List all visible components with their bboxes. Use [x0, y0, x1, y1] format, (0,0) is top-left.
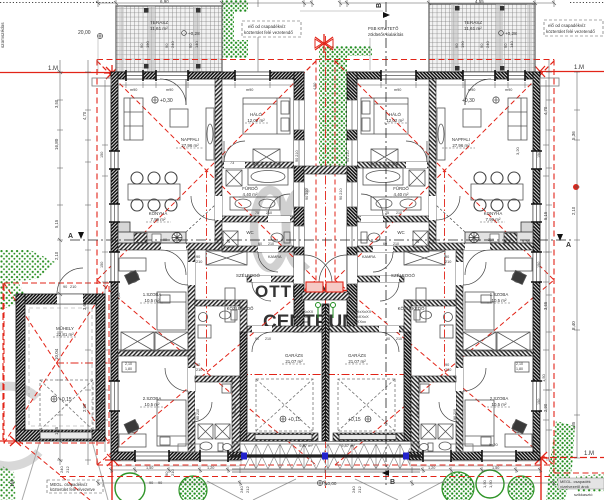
- svg-text:SZÉLFOGÓ: SZÉLFOGÓ: [391, 273, 415, 278]
- svg-text:közterület felé vezetendő: közterület felé vezetendő: [244, 30, 293, 35]
- svg-text:27,96 m²: 27,96 m²: [181, 143, 199, 148]
- svg-text:NAPPALI: NAPPALI: [181, 137, 199, 142]
- svg-text:16,80: 16,80: [54, 138, 59, 150]
- svg-text:10,5 m²: 10,5 m²: [492, 402, 507, 407]
- svg-text:+0,28: +0,28: [188, 31, 200, 36]
- svg-text:NAPPALI: NAPPALI: [452, 137, 470, 142]
- svg-text:90 210: 90 210: [339, 188, 343, 200]
- svg-text:B: B: [390, 479, 395, 486]
- svg-text:212: 212: [357, 486, 362, 493]
- svg-text:90 210: 90 210: [196, 409, 200, 420]
- svg-text:1,20: 1,20: [428, 466, 435, 470]
- svg-text:m90: m90: [246, 88, 253, 92]
- svg-text:GARÁZS: GARÁZS: [348, 353, 366, 358]
- svg-text:210: 210: [226, 245, 232, 249]
- svg-text:210: 210: [196, 260, 202, 264]
- svg-text:75 210: 75 210: [215, 169, 219, 180]
- svg-text:5,20: 5,20: [117, 293, 121, 300]
- svg-text:m90: m90: [130, 88, 137, 92]
- svg-text:szomszédos: szomszédos: [0, 22, 5, 48]
- svg-text:1,50: 1,50: [482, 479, 487, 488]
- svg-text:PSB KRV TETŐ: PSB KRV TETŐ: [368, 26, 399, 31]
- svg-text:2,10: 2,10: [571, 206, 576, 215]
- svg-text:60 210: 60 210: [416, 404, 420, 415]
- svg-text:1,50: 1,50: [541, 373, 546, 382]
- svg-text:5,36: 5,36: [522, 239, 531, 244]
- svg-text:212: 212: [65, 466, 70, 473]
- svg-text:73: 73: [368, 161, 372, 165]
- svg-text:90: 90: [386, 337, 390, 341]
- svg-text:90 210: 90 210: [453, 409, 457, 420]
- svg-text:elő od csapadékvíz: elő od csapadékvíz: [548, 23, 586, 28]
- svg-text:KAMRA: KAMRA: [362, 255, 376, 259]
- svg-text:4,40 m²: 4,40 m²: [394, 192, 409, 197]
- svg-text:90: 90: [479, 43, 484, 48]
- svg-text:150: 150: [537, 262, 541, 268]
- svg-text:90: 90: [255, 337, 259, 341]
- svg-text:75: 75: [385, 211, 389, 215]
- svg-text:+0,28: +0,28: [505, 31, 517, 36]
- svg-text:+0,15: +0,15: [288, 417, 301, 423]
- svg-text:1,80: 1,80: [516, 367, 523, 371]
- svg-text:WC: WC: [397, 230, 404, 235]
- svg-text:1,80: 1,80: [125, 367, 132, 371]
- svg-text:TERASZ: TERASZ: [464, 20, 482, 25]
- svg-text:TERASZ: TERASZ: [150, 20, 168, 25]
- svg-text:210: 210: [488, 238, 494, 242]
- svg-text:1,50: 1,50: [488, 479, 493, 488]
- svg-text:3,50: 3,50: [54, 99, 59, 108]
- svg-text:1.M: 1.M: [48, 66, 58, 72]
- svg-text:10,5 m²: 10,5 m²: [145, 402, 160, 407]
- svg-text:210: 210: [70, 285, 76, 289]
- svg-text:10,5 m²: 10,5 m²: [492, 298, 507, 303]
- svg-text:1,20: 1,20: [207, 466, 214, 470]
- svg-text:7,99 m²: 7,99 m²: [486, 217, 501, 222]
- svg-text:KAMRA: KAMRA: [268, 255, 282, 259]
- svg-text:1,50: 1,50: [492, 466, 499, 470]
- svg-text:közterület felé vezetendő: közterület felé vezetendő: [546, 29, 595, 34]
- svg-text:75: 75: [415, 240, 419, 244]
- svg-text:12,02 m²: 12,02 m²: [247, 118, 265, 123]
- svg-text:90: 90: [164, 471, 169, 476]
- svg-text:20,00: 20,00: [78, 30, 91, 36]
- svg-text:1.SZOBA: 1.SZOBA: [143, 292, 162, 297]
- svg-text:KONYHA: KONYHA: [484, 211, 503, 216]
- svg-text:+0,15: +0,15: [348, 417, 361, 423]
- svg-text:150: 150: [100, 262, 104, 268]
- svg-text:GARÁZS: GARÁZS: [285, 353, 303, 358]
- svg-text:3,65: 3,65: [82, 301, 87, 310]
- svg-text:KÖZLEKEDŐ: KÖZLEKEDŐ: [398, 306, 425, 311]
- svg-text:90: 90: [196, 255, 200, 259]
- svg-text:150: 150: [100, 152, 104, 158]
- svg-text:lm20: lm20: [489, 442, 498, 447]
- svg-text:2,90: 2,90: [543, 403, 548, 412]
- svg-text:7,99 m²: 7,99 m²: [151, 217, 166, 222]
- svg-text:+0,30: +0,30: [462, 98, 475, 104]
- svg-text:2,10: 2,10: [516, 362, 523, 366]
- svg-text:3,20: 3,20: [515, 146, 520, 155]
- svg-text:210: 210: [393, 242, 399, 246]
- svg-text:m90: m90: [468, 88, 475, 92]
- svg-text:60: 60: [383, 242, 387, 246]
- svg-text:21,07 m²: 21,07 m²: [348, 359, 366, 364]
- svg-text:10,04: 10,04: [54, 348, 59, 360]
- svg-text:90 210: 90 210: [295, 150, 299, 162]
- svg-text:210: 210: [445, 260, 451, 264]
- svg-text:B: B: [376, 3, 383, 8]
- svg-text:5,36: 5,36: [571, 131, 576, 140]
- svg-text:1,85: 1,85: [571, 421, 576, 430]
- svg-text:2,90: 2,90: [82, 403, 87, 412]
- svg-text:140: 140: [194, 41, 199, 48]
- svg-text:210: 210: [268, 242, 274, 246]
- svg-text:240: 240: [170, 41, 175, 48]
- svg-text:HÁLÓ: HÁLÓ: [250, 112, 263, 117]
- svg-text:5,15: 5,15: [54, 219, 59, 228]
- svg-text:90: 90: [454, 43, 459, 48]
- svg-text:150: 150: [537, 152, 541, 158]
- svg-text:190: 190: [460, 41, 465, 48]
- svg-text:73: 73: [230, 161, 234, 165]
- svg-text:2,10: 2,10: [54, 251, 59, 260]
- svg-text:A: A: [566, 242, 571, 249]
- svg-text:4,55: 4,55: [475, 0, 484, 4]
- svg-text:zöldtetős kialakítás: zöldtetős kialakítás: [368, 32, 403, 37]
- svg-text:240: 240: [485, 41, 490, 48]
- svg-text:210: 210: [396, 211, 402, 215]
- svg-text:60: 60: [258, 242, 262, 246]
- svg-text:90 210: 90 210: [305, 188, 309, 200]
- svg-text:150: 150: [537, 399, 541, 405]
- svg-text:212: 212: [245, 486, 250, 493]
- svg-text:1M: 1M: [10, 480, 16, 487]
- svg-text:90: 90: [445, 255, 449, 259]
- svg-text:6,90: 6,90: [160, 0, 169, 4]
- svg-text:4,50: 4,50: [313, 83, 317, 90]
- svg-text:90: 90: [164, 43, 169, 48]
- svg-text:m90: m90: [505, 88, 512, 92]
- svg-text:1,85: 1,85: [54, 426, 59, 435]
- svg-text:75: 75: [226, 240, 230, 244]
- svg-text:XxXXxx: XxXXxx: [294, 319, 308, 324]
- svg-text:szikkasztó: szikkasztó: [574, 492, 593, 497]
- svg-text:SZÉLFOGÓ: SZÉLFOGÓ: [236, 273, 260, 278]
- svg-text:210: 210: [396, 337, 402, 341]
- svg-text:2,10: 2,10: [125, 362, 132, 366]
- svg-text:1.SZOBA: 1.SZOBA: [490, 292, 509, 297]
- svg-text:210: 210: [415, 245, 421, 249]
- svg-text:m90: m90: [166, 88, 173, 92]
- svg-text:210: 210: [196, 368, 202, 372]
- svg-text:140: 140: [509, 41, 514, 48]
- svg-text:210: 210: [170, 469, 175, 476]
- svg-text:KÖZLEKEDŐ: KÖZLEKEDŐ: [227, 306, 254, 311]
- svg-text:90 210: 90 210: [346, 150, 350, 162]
- svg-text:1.M: 1.M: [574, 65, 584, 71]
- svg-text:FÜRDŐ: FÜRDŐ: [393, 186, 409, 191]
- svg-text:KONYHA: KONYHA: [149, 211, 168, 216]
- svg-text:MŰHELY: MŰHELY: [56, 326, 74, 331]
- svg-text:9,87 m²: 9,87 m²: [341, 443, 355, 448]
- svg-text:m90: m90: [394, 88, 401, 92]
- svg-text:+0,30: +0,30: [160, 98, 173, 104]
- svg-text:90: 90: [139, 43, 144, 48]
- svg-text:4,70: 4,70: [82, 111, 87, 120]
- svg-text:12,02 m²: 12,02 m²: [386, 118, 404, 123]
- svg-text:WC: WC: [246, 230, 253, 235]
- svg-text:11,61 m²: 11,61 m²: [150, 26, 168, 31]
- svg-text:4,40 m²: 4,40 m²: [243, 192, 258, 197]
- svg-text:90: 90: [476, 238, 480, 242]
- svg-text:8,40: 8,40: [571, 321, 576, 330]
- svg-text:elő od csapadékvíz: elő od csapadékvíz: [248, 24, 286, 29]
- svg-text:+0,15: +0,15: [59, 397, 72, 403]
- svg-text:210: 210: [445, 368, 451, 372]
- svg-text:90: 90: [163, 238, 167, 242]
- svg-text:90: 90: [188, 43, 193, 48]
- svg-text:XxXXxx: XxXXxx: [352, 319, 366, 324]
- svg-text:közterület felé elvezetve: közterület felé elvezetve: [50, 487, 96, 492]
- svg-text:240: 240: [59, 466, 64, 473]
- svg-text:150: 150: [100, 399, 104, 405]
- svg-text:60 210: 60 210: [233, 404, 237, 415]
- svg-text:1,50: 1,50: [146, 466, 153, 470]
- svg-text:27,96 m²: 27,96 m²: [452, 143, 470, 148]
- svg-text:A: A: [68, 233, 73, 240]
- svg-text:21,07 m²: 21,07 m²: [285, 359, 303, 364]
- svg-text:210: 210: [265, 337, 271, 341]
- svg-text:90: 90: [445, 363, 449, 367]
- svg-text:75: 75: [255, 211, 259, 215]
- svg-text:9,87 m²: 9,87 m²: [299, 443, 313, 448]
- svg-text:10,5 m²: 10,5 m²: [145, 298, 160, 303]
- svg-text:240: 240: [239, 486, 244, 493]
- svg-text:190: 190: [145, 41, 150, 48]
- svg-text:90: 90: [149, 481, 153, 485]
- svg-text:75 210: 75 210: [433, 169, 437, 180]
- svg-text:240: 240: [351, 486, 356, 493]
- svg-text:90: 90: [158, 481, 162, 485]
- svg-text:210: 210: [266, 211, 272, 215]
- svg-text:FÜRDŐ: FÜRDŐ: [242, 186, 258, 191]
- svg-text:2.SZOBA: 2.SZOBA: [490, 396, 509, 401]
- svg-text:HÁLÓ: HÁLÓ: [389, 112, 402, 117]
- svg-text:22,81 m²: 22,81 m²: [56, 332, 74, 337]
- svg-text:1.M: 1.M: [584, 451, 594, 457]
- svg-text:210: 210: [175, 238, 181, 242]
- svg-text:4,70: 4,70: [543, 106, 548, 115]
- svg-text:90: 90: [503, 43, 508, 48]
- svg-text:vízelvezető árok: vízelvezető árok: [560, 484, 589, 489]
- svg-text:3,65: 3,65: [543, 301, 548, 310]
- svg-text:11,61 m²: 11,61 m²: [464, 26, 482, 31]
- svg-text:±0,00: ±0,00: [325, 481, 337, 486]
- svg-text:90: 90: [196, 363, 200, 367]
- svg-text:90: 90: [63, 285, 67, 289]
- svg-text:5,15: 5,15: [543, 211, 548, 220]
- svg-text:2.SZOBA: 2.SZOBA: [143, 396, 162, 401]
